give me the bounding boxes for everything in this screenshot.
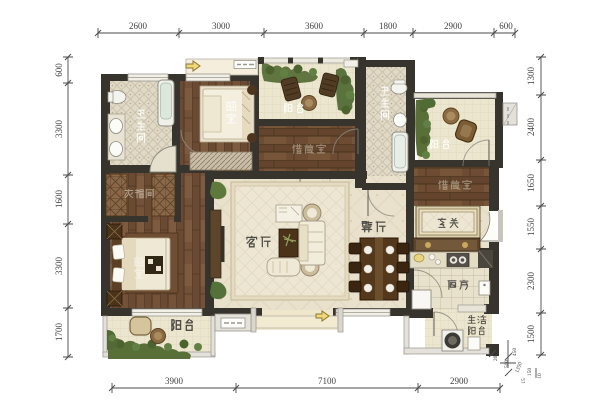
svg-text:150: 150 bbox=[527, 368, 533, 377]
svg-text:600: 600 bbox=[499, 21, 513, 31]
svg-text:500: 500 bbox=[504, 360, 510, 369]
svg-text:2600: 2600 bbox=[129, 21, 148, 31]
svg-text:15: 15 bbox=[521, 378, 527, 384]
svg-text:1300: 1300 bbox=[526, 67, 536, 86]
svg-text:1500: 1500 bbox=[526, 325, 536, 344]
svg-text:1800: 1800 bbox=[379, 21, 398, 31]
svg-text:3000: 3000 bbox=[212, 21, 231, 31]
svg-text:200: 200 bbox=[493, 353, 499, 362]
svg-text:1550: 1550 bbox=[526, 218, 536, 237]
svg-text:1650: 1650 bbox=[526, 174, 536, 193]
svg-text:3900: 3900 bbox=[165, 376, 184, 386]
svg-text:3300: 3300 bbox=[54, 257, 64, 276]
svg-text:3300: 3300 bbox=[54, 120, 64, 139]
svg-text:7100: 7100 bbox=[318, 376, 337, 386]
svg-text:2300: 2300 bbox=[526, 272, 536, 291]
svg-text:10: 10 bbox=[537, 373, 543, 379]
svg-text:1600: 1600 bbox=[54, 190, 64, 209]
svg-text:1700: 1700 bbox=[54, 323, 64, 342]
svg-text:3600: 3600 bbox=[305, 21, 324, 31]
svg-text:450: 450 bbox=[512, 348, 518, 357]
svg-text:600: 600 bbox=[54, 63, 64, 77]
svg-text:2900: 2900 bbox=[450, 376, 469, 386]
svg-text:2900: 2900 bbox=[444, 21, 463, 31]
svg-text:2400: 2400 bbox=[526, 118, 536, 137]
